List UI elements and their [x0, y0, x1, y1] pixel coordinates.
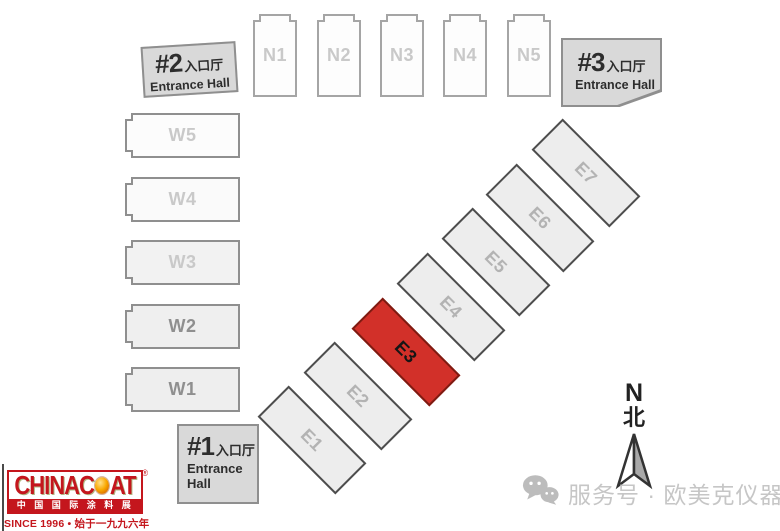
- entrance-hall-2-cn: 入口厅: [184, 54, 224, 75]
- entrance-hall-2: #2 入口厅 Entrance Hall: [141, 41, 239, 98]
- hall-n5: N5: [507, 14, 551, 97]
- hall-e5-label: E5: [480, 246, 511, 277]
- logo-o-ball-icon: [95, 477, 109, 494]
- compass-north-cn: 北: [600, 406, 668, 429]
- hall-n3: N3: [380, 14, 424, 97]
- hall-w3-label: W3: [169, 252, 197, 273]
- hall-e1-label: E1: [296, 424, 327, 455]
- hall-e6-label: E6: [524, 202, 555, 233]
- registered-mark: ®: [142, 468, 147, 479]
- hall-w5-label: W5: [169, 125, 197, 146]
- chinacoat-wordmark: CHINAC AT ®: [9, 469, 141, 501]
- entrance-hall-2-number: #2: [154, 47, 183, 80]
- entrance-hall-2-title: #2 入口厅: [147, 44, 232, 80]
- hall-e4-label: E4: [435, 291, 466, 322]
- entrance-hall-3-number: #3: [578, 47, 605, 78]
- hall-w1: W1: [125, 367, 240, 412]
- hall-w3: W3: [125, 240, 240, 285]
- watermark-text: 服务号 · 欧美克仪器: [568, 476, 780, 510]
- hall-w4-label: W4: [169, 189, 197, 210]
- entrance-hall-1-en-line2: Hall: [187, 477, 257, 492]
- wechat-icon: [522, 474, 560, 511]
- hall-e7-label: E7: [570, 157, 601, 188]
- hall-e3-label: E3: [390, 336, 421, 367]
- entrance-hall-1-title: #1 入口厅: [187, 431, 257, 462]
- chinacoat-wordmark-left: CHINAC: [14, 470, 94, 501]
- hall-n4-label: N4: [453, 45, 477, 66]
- entrance-hall-1-cn: 入口厅: [216, 440, 255, 459]
- entrance-hall-3-en: Entrance Hall: [563, 78, 660, 92]
- hall-n5-label: N5: [517, 45, 541, 66]
- entrance-hall-3-cn: 入口厅: [606, 56, 645, 75]
- chinacoat-wordmark-right: AT: [110, 470, 136, 501]
- chinacoat-logo: CHINAC AT ® 中国国际涂料展: [7, 470, 143, 514]
- hall-w1-label: W1: [169, 379, 197, 400]
- entrance-hall-3-title: #3 入口厅: [563, 47, 660, 78]
- entrance-hall-1: #1 入口厅 Entrance Hall: [177, 424, 259, 504]
- hall-n2-label: N2: [327, 45, 351, 66]
- hall-n2: N2: [317, 14, 361, 97]
- compass-north-letter: N: [600, 381, 668, 406]
- entrance-hall-1-en-line1: Entrance: [187, 462, 257, 477]
- hall-n3-label: N3: [390, 45, 414, 66]
- hall-w2: W2: [125, 304, 240, 349]
- logo-tagline: SINCE 1996 • 始于一九九六年: [4, 516, 164, 531]
- entrance-hall-3-face: #3 入口厅 Entrance Hall: [563, 40, 660, 105]
- exhibition-floor-map: N1 N2 N3 N4 N5 W5 W4 W3 W2 W1 E1 E2 E3 E…: [0, 0, 780, 531]
- hall-n1-label: N1: [263, 45, 287, 66]
- entrance-hall-1-number: #1: [187, 431, 214, 462]
- hall-e2-label: E2: [342, 380, 373, 411]
- hall-n4: N4: [443, 14, 487, 97]
- hall-n1: N1: [253, 14, 297, 97]
- hall-w5: W5: [125, 113, 240, 158]
- hall-w2-label: W2: [169, 316, 197, 337]
- watermark: 服务号 · 欧美克仪器: [522, 474, 780, 511]
- hall-w4: W4: [125, 177, 240, 222]
- entrance-hall-3: #3 入口厅 Entrance Hall: [561, 38, 662, 107]
